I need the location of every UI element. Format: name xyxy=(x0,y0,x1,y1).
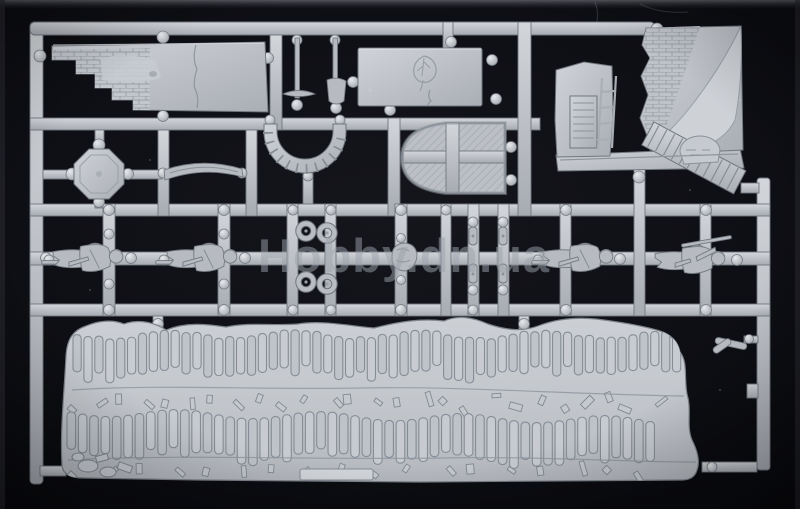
sprue-photo: Hobby.dn.ua xyxy=(0,0,800,509)
vignette-overlay xyxy=(0,0,800,509)
